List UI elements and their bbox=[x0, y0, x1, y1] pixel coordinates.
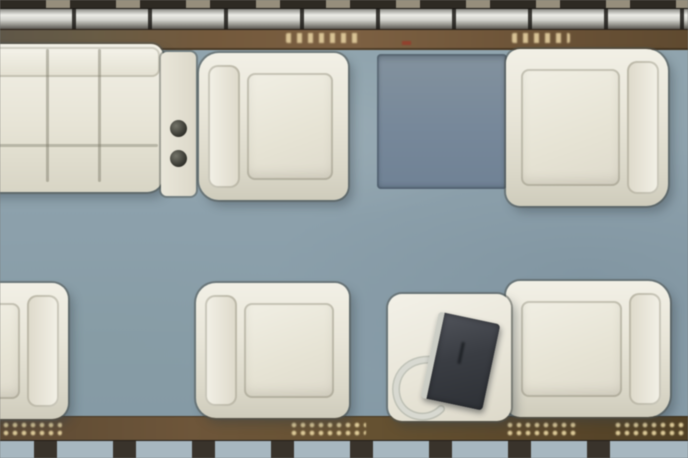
seat-backrest bbox=[627, 61, 659, 194]
cup-holder bbox=[170, 120, 187, 137]
seat-cushion bbox=[247, 73, 333, 180]
red-marking bbox=[402, 41, 411, 45]
seat-cushion bbox=[521, 301, 622, 397]
trim-motif bbox=[2, 421, 62, 436]
sideboard-marking bbox=[286, 33, 362, 43]
bottom-sideboard bbox=[0, 416, 688, 442]
seat-backrest bbox=[629, 293, 661, 405]
club-seat-top-mid[interactable] bbox=[199, 53, 348, 200]
trim-motif bbox=[614, 421, 686, 436]
cup-holder bbox=[170, 150, 187, 167]
sofa-front-seam bbox=[0, 144, 158, 147]
side-console[interactable] bbox=[161, 52, 196, 196]
seat-backrest bbox=[208, 65, 240, 188]
sofa-back-cushion bbox=[0, 47, 160, 77]
club-seat-bottom-mid[interactable] bbox=[196, 283, 349, 418]
club-seat-bottom-left[interactable] bbox=[0, 283, 68, 419]
bottom-window-strip bbox=[0, 440, 688, 458]
overhead-rail bbox=[0, 8, 688, 30]
stowed-table-panel[interactable] bbox=[377, 54, 507, 189]
seat-backrest bbox=[205, 295, 237, 406]
club-seat-bottom-right[interactable] bbox=[506, 281, 670, 417]
seat-cushion bbox=[244, 303, 334, 398]
seat-backrest bbox=[27, 295, 59, 407]
seat-cushion bbox=[0, 303, 20, 399]
cabin-floorplan bbox=[0, 0, 688, 458]
club-seat-top-right[interactable] bbox=[506, 49, 668, 206]
sofa[interactable] bbox=[0, 44, 163, 192]
trim-motif bbox=[290, 421, 366, 436]
seat-cushion bbox=[521, 69, 620, 186]
sideboard-marking bbox=[512, 33, 570, 43]
sofa-cushion-seam bbox=[46, 49, 49, 182]
sofa-cushion-seam bbox=[98, 49, 101, 182]
trim-motif bbox=[506, 421, 578, 436]
